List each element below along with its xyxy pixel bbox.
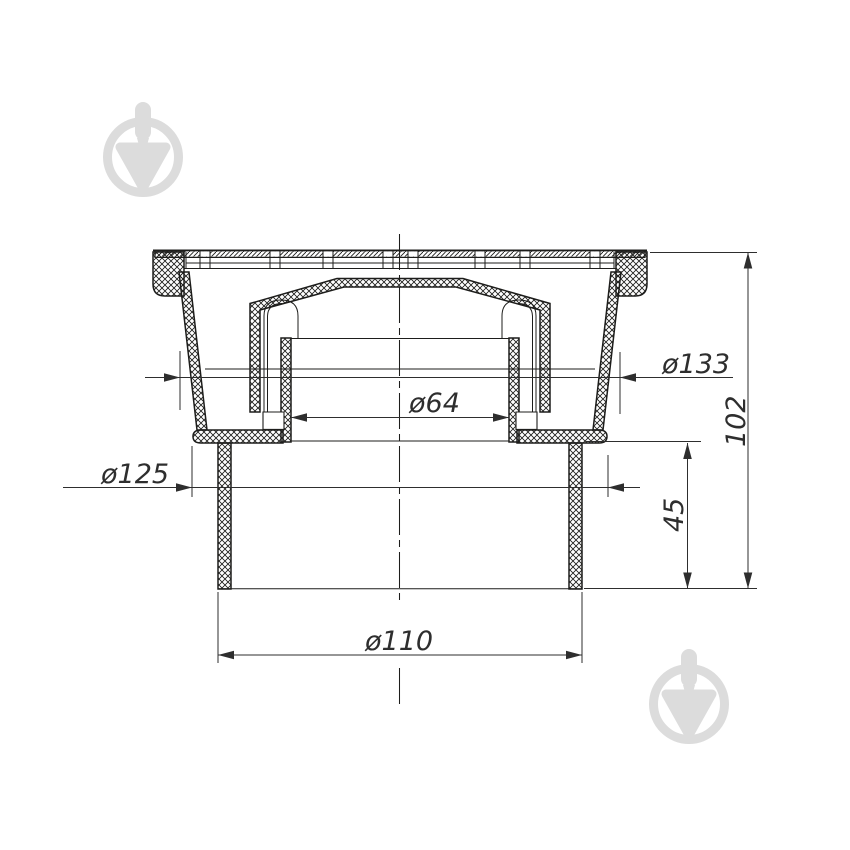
brand-watermark-icon	[654, 649, 725, 740]
technical-drawing: ø133 ø64 ø125 ø110 45 102	[0, 0, 850, 850]
pipe-wall-right	[569, 443, 582, 589]
dimension-label-110: ø110	[364, 626, 433, 657]
tub-wall-left	[179, 272, 207, 430]
cup-foot-left	[263, 412, 284, 429]
pipe-wall-left	[218, 443, 231, 589]
dimension-label-64: ø64	[408, 388, 460, 419]
tub-floor-left	[193, 430, 283, 443]
dimension-label-102: 102	[721, 395, 752, 447]
grate-plate	[155, 250, 645, 257]
dimension-label-125: ø125	[100, 459, 169, 490]
dimension-height-45: 45	[586, 442, 701, 589]
cup-foot-right	[516, 412, 537, 429]
dimension-diameter-110: ø110	[218, 592, 582, 663]
dimension-diameter-125: ø125	[63, 446, 640, 497]
tub-wall-right	[593, 272, 621, 430]
dimension-label-133: ø133	[661, 349, 730, 380]
dimension-label-45: 45	[659, 498, 690, 532]
drawing-page: ø133 ø64 ø125 ø110 45 102	[0, 0, 850, 850]
brand-watermark-icon	[108, 102, 179, 193]
